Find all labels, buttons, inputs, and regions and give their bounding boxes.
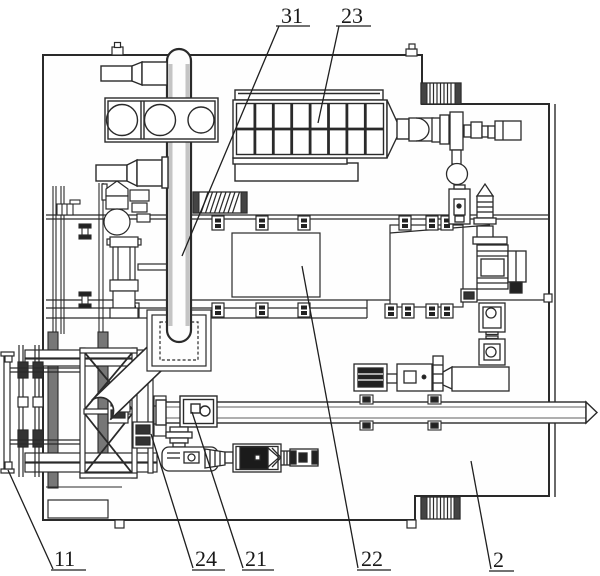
ref-label-11: 11 bbox=[54, 546, 75, 571]
spray-nozzle-upper bbox=[101, 62, 167, 85]
patent-figure: 31 23 11 24 21 22 2 bbox=[0, 0, 600, 576]
ref-label-23: 23 bbox=[341, 3, 363, 28]
ladder-bottom bbox=[421, 497, 460, 519]
pusher-box-21 bbox=[180, 396, 217, 427]
ref-label-22: 22 bbox=[361, 546, 383, 571]
blower-box bbox=[105, 98, 218, 142]
ref-label-21: 21 bbox=[245, 546, 267, 571]
ref-label-2: 2 bbox=[493, 547, 504, 572]
ref-label-31: 31 bbox=[281, 3, 303, 28]
ladder-top-right bbox=[421, 83, 461, 104]
vertical-pipe-31 bbox=[167, 49, 191, 342]
ref-label-24: 24 bbox=[195, 546, 217, 571]
figure-drawing: 31 23 11 24 21 22 2 bbox=[0, 0, 600, 576]
